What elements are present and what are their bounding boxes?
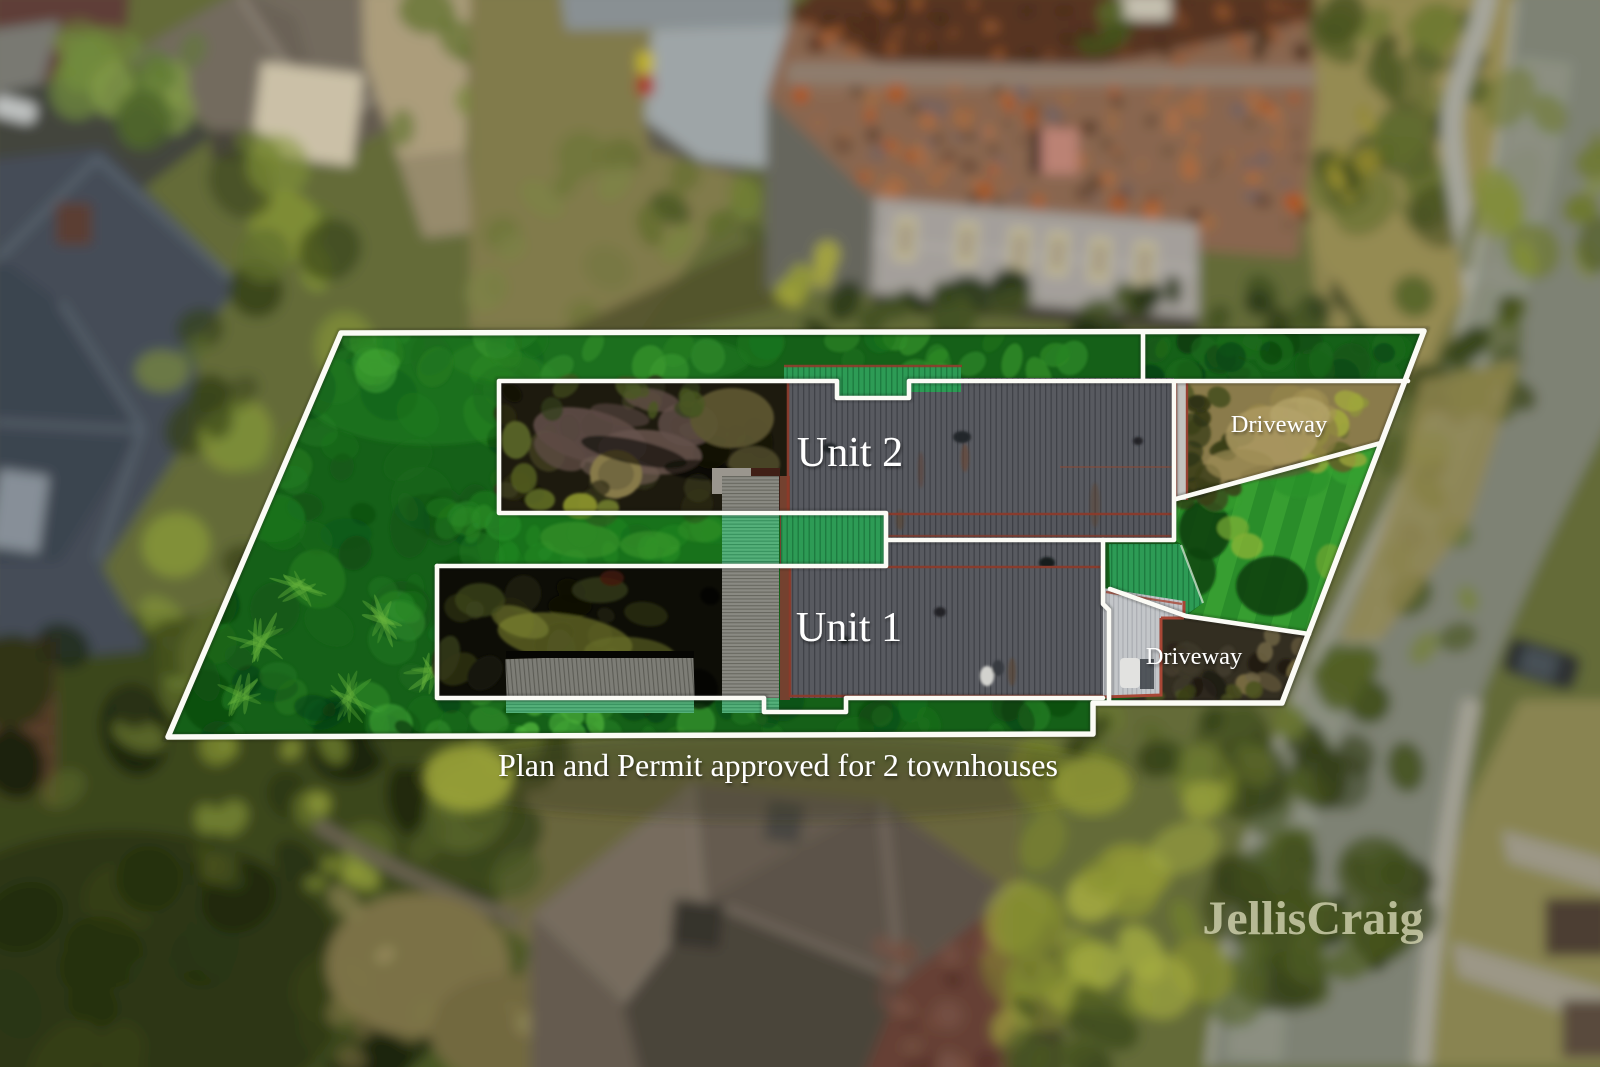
svg-text:Plan and Permit approved for 2: Plan and Permit approved for 2 townhouse…	[498, 747, 1058, 783]
svg-text:Unit 1: Unit 1	[796, 605, 902, 651]
svg-text:JellisCraig: JellisCraig	[1202, 892, 1423, 945]
svg-text:Unit 2: Unit 2	[797, 430, 903, 476]
svg-text:Driveway: Driveway	[1231, 411, 1328, 438]
svg-text:Driveway: Driveway	[1146, 643, 1243, 670]
